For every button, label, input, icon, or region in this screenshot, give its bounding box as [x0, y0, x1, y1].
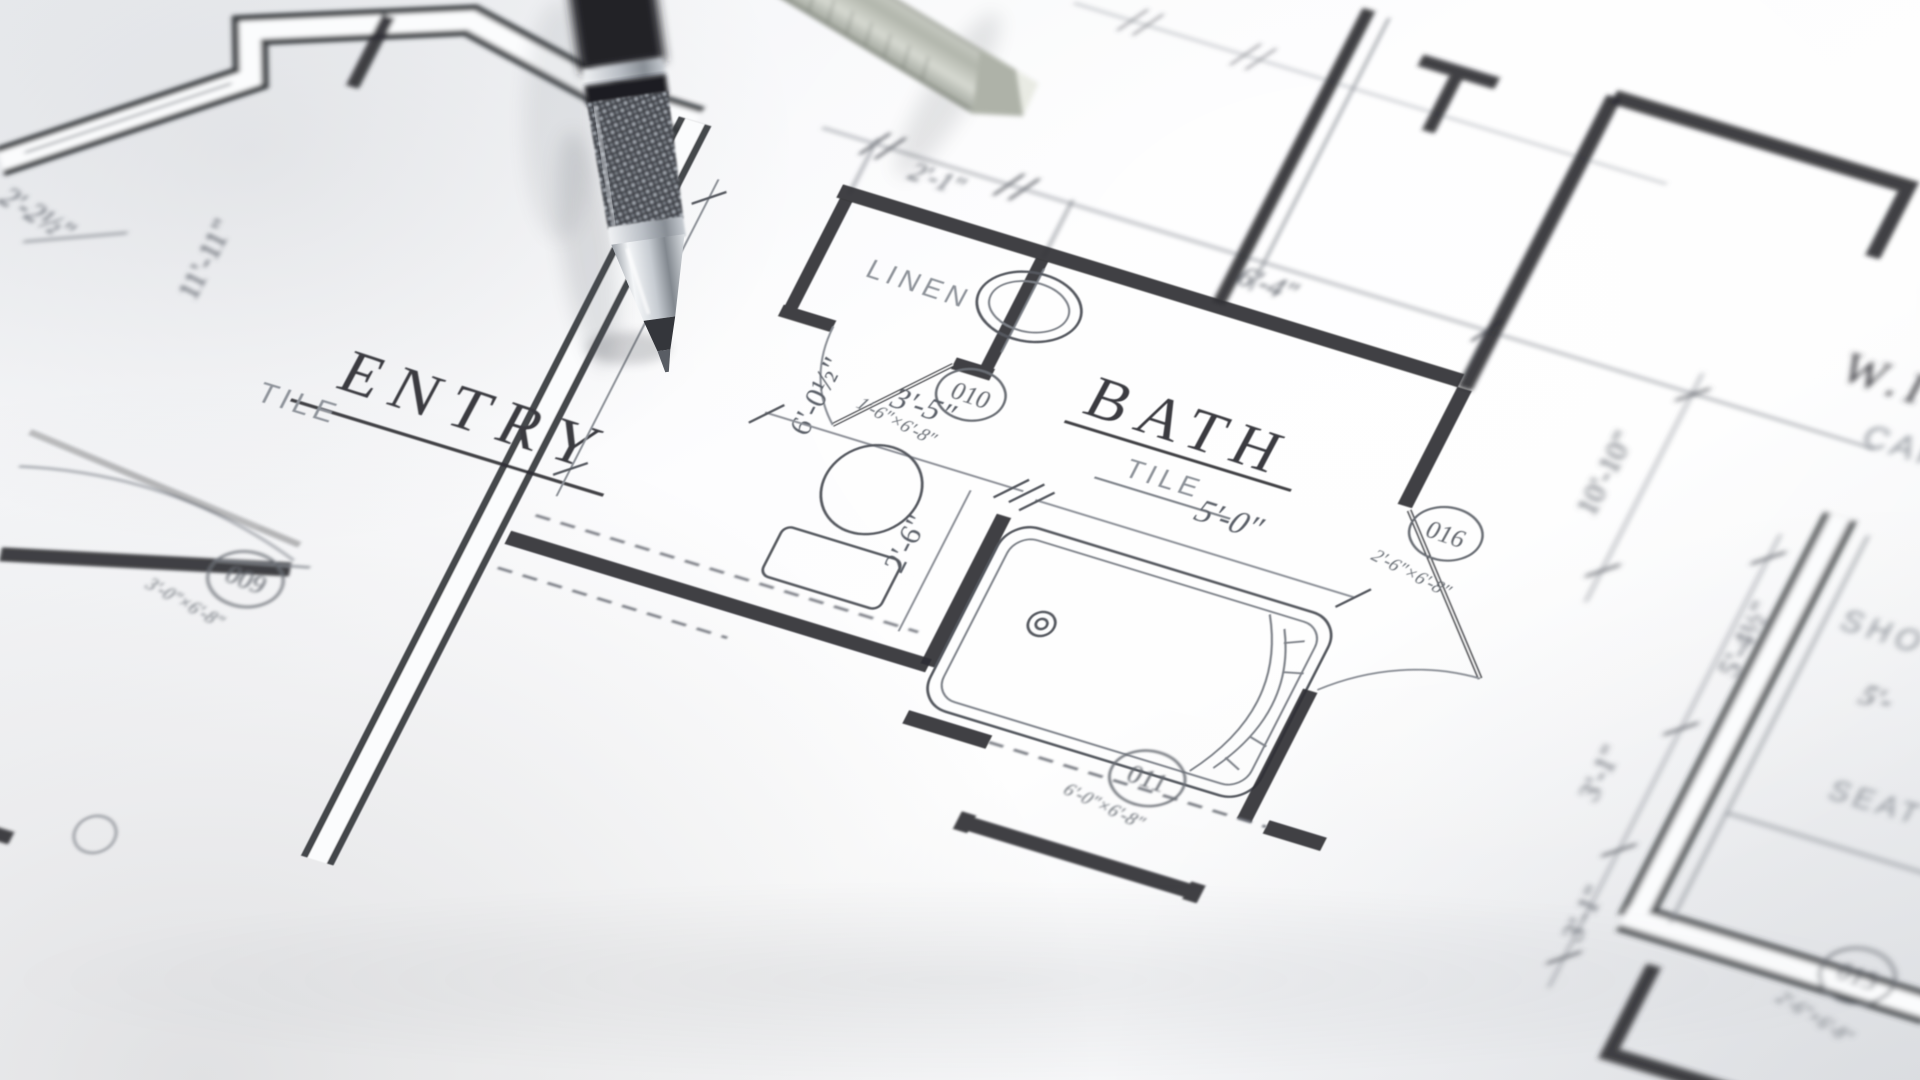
- blueprint-photo: 11'-11" 2'-2½" 2'-1" 6'-4": [0, 0, 1920, 1080]
- blueprint-photo-canvas: 11'-11" 2'-2½" 2'-1" 6'-4": [0, 0, 1920, 1080]
- bottom-vignette: [0, 880, 1920, 1080]
